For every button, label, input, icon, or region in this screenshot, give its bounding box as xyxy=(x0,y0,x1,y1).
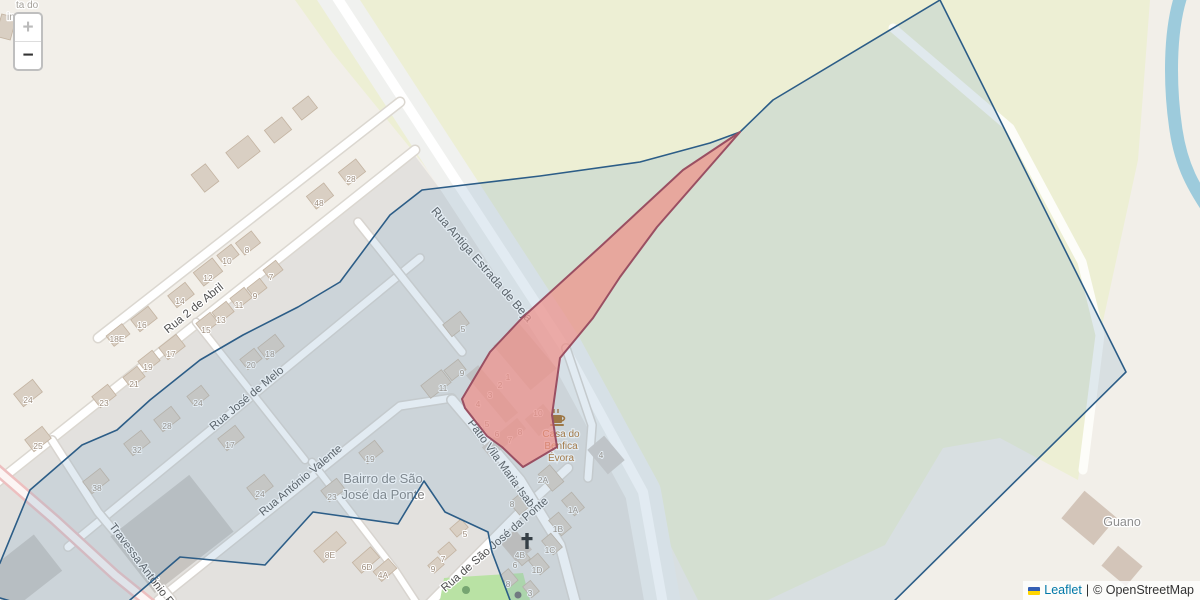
house-number: 25 xyxy=(33,441,43,451)
zoom-out-button[interactable]: − xyxy=(15,42,41,69)
house-number: 9 xyxy=(253,291,258,301)
zoom-in-button[interactable]: + xyxy=(15,14,41,42)
map-canvas[interactable]: 12141618E8102848171921151311971820242425… xyxy=(0,0,1200,600)
house-number: 7 xyxy=(269,272,274,282)
house-number: 21 xyxy=(129,379,139,389)
attribution-bar: Leaflet | © OpenStreetMap xyxy=(1023,581,1200,600)
house-number: 11 xyxy=(235,300,244,310)
house-number: 12 xyxy=(203,273,213,283)
osm-copyright: © OpenStreetMap xyxy=(1093,583,1194,598)
house-number: 18E xyxy=(109,334,124,344)
house-number: 15 xyxy=(201,325,211,335)
leaflet-map[interactable]: 12141618E8102848171921151311971820242425… xyxy=(0,0,1200,600)
house-number: 23 xyxy=(99,398,109,408)
house-number: 16 xyxy=(137,320,147,330)
house-number: 24 xyxy=(23,395,33,405)
house-number: 8E xyxy=(325,550,336,560)
house-number: 9 xyxy=(431,564,436,574)
house-number: 7 xyxy=(441,554,446,564)
house-number: 6D xyxy=(362,562,373,572)
house-number: 13 xyxy=(216,315,226,325)
house-number: 4A xyxy=(378,570,389,580)
house-number: 8 xyxy=(245,245,250,255)
leaflet-link[interactable]: Leaflet xyxy=(1044,583,1082,598)
edge-label-fragment-1: ta do xyxy=(16,0,39,11)
house-number: 17 xyxy=(166,349,176,359)
tree-icon xyxy=(462,586,470,594)
house-number: 48 xyxy=(314,198,324,208)
house-number: 28 xyxy=(346,174,356,184)
guano-label: Guano xyxy=(1103,515,1141,529)
house-number: 10 xyxy=(222,256,232,266)
house-number: 5 xyxy=(463,529,468,539)
ukraine-flag-icon xyxy=(1028,587,1040,595)
house-number: 19 xyxy=(143,362,153,372)
house-number: 14 xyxy=(175,296,185,306)
attribution-separator: | xyxy=(1086,583,1089,598)
zoom-control: + − xyxy=(13,12,43,71)
